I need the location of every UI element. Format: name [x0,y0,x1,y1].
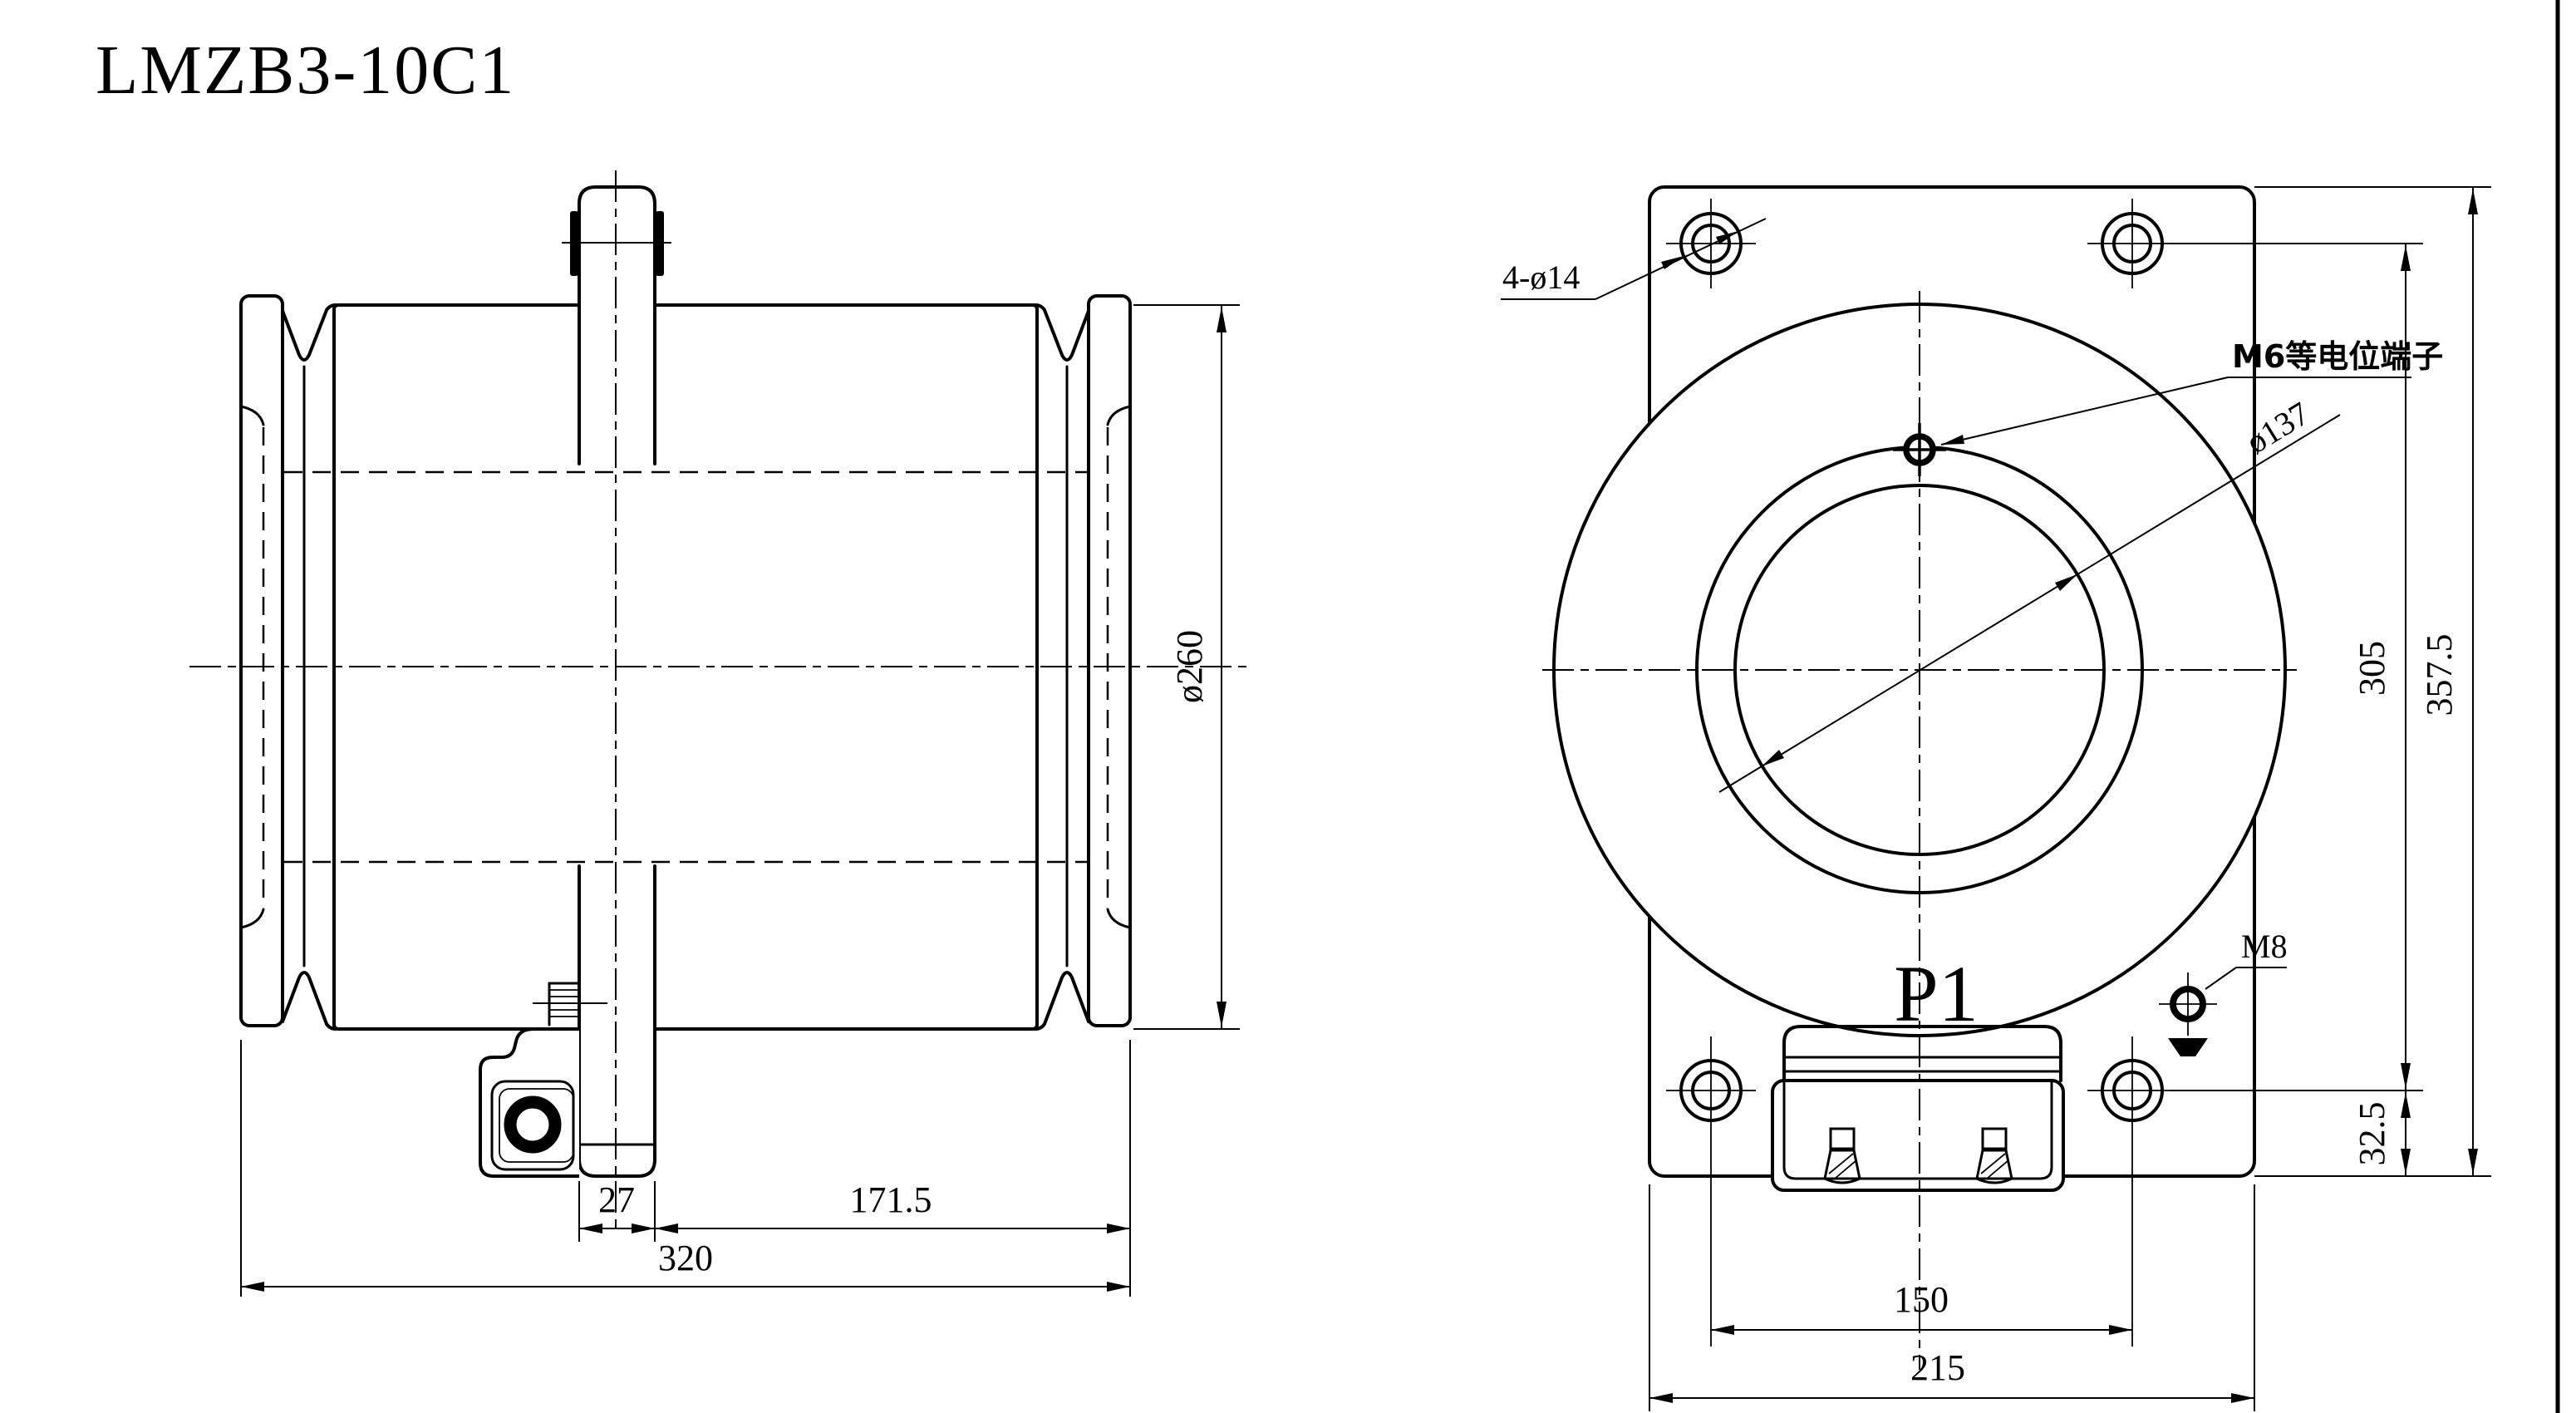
dim-hole-spacing-horizontal-text: 215 [1910,1347,1965,1388]
dim-tab-width-text: 27 [598,1179,635,1220]
dim-terminal-screw-spacing-text: 150 [1894,1279,1949,1320]
dim-bottom-hole-offset-text: 32.5 [2352,1102,2392,1166]
cad-drawing: LMZB3-10C1 [0,0,2576,1413]
dim-overall-length-text: 320 [658,1238,713,1278]
dim-overall-height-text: 357.5 [2419,634,2460,716]
groove-top-right [1035,305,1089,360]
drawing-title: LMZB3-10C1 [96,32,515,109]
dim-bottom-group: 27 171.5 320 [241,1040,1130,1297]
groove-bottom-left [283,972,336,1029]
bottom-tab-mask [581,866,653,1174]
groove-top-left [283,305,336,360]
label-ground-bolt-text: M8 [2241,928,2288,965]
label-equipotential-text: M6等电位端子 [2232,338,2443,375]
top-tab-mask [581,189,653,464]
dim-tab-to-edge-text: 171.5 [850,1179,932,1220]
label-mounting-holes-text: 4-ø14 [1502,258,1580,296]
dim-outer-diameter-text: ø260 [1169,630,1210,703]
drawing-sheet: LMZB3-10C1 [0,0,2576,1413]
side-view: ø260 27 171.5 320 [189,170,1246,1297]
dim-hole-spacing-vertical-text: 305 [2352,641,2392,696]
groove-bottom-right [1035,972,1089,1029]
primary-terminal-marking: P1 [1894,949,1978,1038]
front-view: P1 [1501,187,2491,1411]
bracket-bolt-hole [510,1102,555,1147]
